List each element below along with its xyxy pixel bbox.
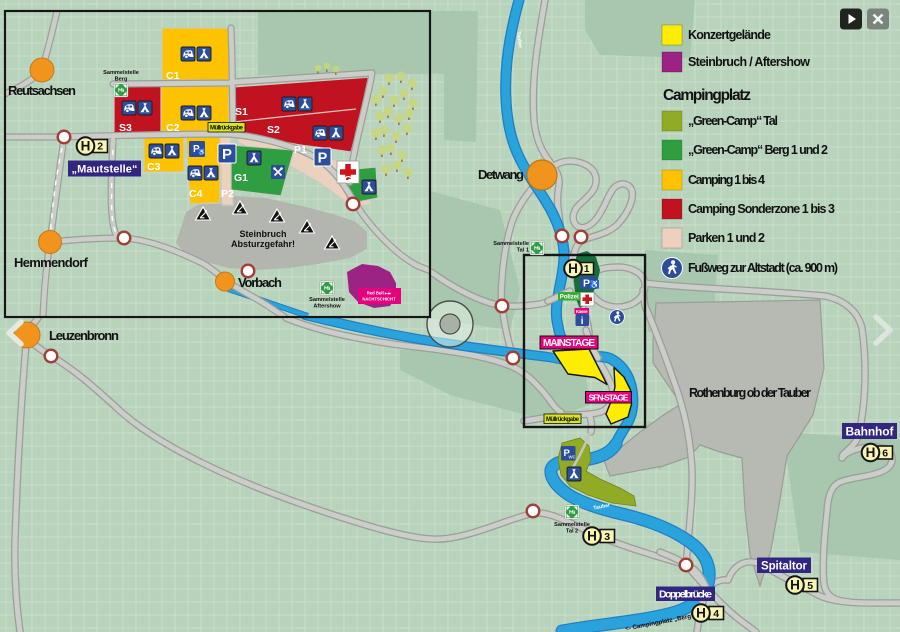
svg-text:Sammelstelle: Sammelstelle <box>554 522 590 528</box>
svg-text:♿: ♿ <box>198 148 206 156</box>
svg-text:Kasse: Kasse <box>576 309 588 314</box>
svg-text:C4: C4 <box>189 188 203 200</box>
svg-text:♿: ♿ <box>590 279 600 289</box>
svg-text:Müllrückgabe: Müllrückgabe <box>210 126 244 132</box>
svg-text:Berg: Berg <box>115 77 128 83</box>
svg-text:G2: G2 <box>344 174 358 186</box>
svg-text:S1: S1 <box>235 106 248 118</box>
svg-text:Campingplatz: Campingplatz <box>663 87 751 104</box>
svg-text:Red Bull ▸◂▸: Red Bull ▸◂▸ <box>367 291 392 296</box>
svg-text:4: 4 <box>713 608 719 620</box>
svg-text:P2: P2 <box>221 188 234 200</box>
svg-text:wc: wc <box>568 455 576 461</box>
svg-text:MAINSTAGE: MAINSTAGE <box>543 338 595 349</box>
svg-text:S2: S2 <box>267 124 280 136</box>
svg-text:Tal 1: Tal 1 <box>517 248 529 254</box>
svg-text:P: P <box>318 151 328 167</box>
svg-text:SFN-STAGE: SFN-STAGE <box>589 392 629 402</box>
svg-text:Sammelstelle: Sammelstelle <box>309 297 345 303</box>
svg-text:Polizei: Polizei <box>560 294 579 301</box>
svg-text:Tal 2: Tal 2 <box>566 529 578 535</box>
svg-text:Sammelstelle: Sammelstelle <box>103 70 139 76</box>
svg-text:„Green-Camp“ Tal: „Green-Camp“ Tal <box>688 114 778 128</box>
svg-text:1: 1 <box>584 264 590 275</box>
svg-text:3: 3 <box>604 531 610 543</box>
svg-text:Steinbruch / Aftershow: Steinbruch / Aftershow <box>688 55 810 69</box>
svg-text:i: i <box>581 316 584 327</box>
svg-text:Absturzgefahr!: Absturzgefahr! <box>231 239 295 249</box>
svg-text:Reutsachsen: Reutsachsen <box>8 83 76 98</box>
svg-text:Camping 1 bis 4: Camping 1 bis 4 <box>688 173 765 187</box>
svg-text:Müllrückgabe: Müllrückgabe <box>546 417 580 423</box>
svg-text:P: P <box>222 146 232 163</box>
svg-text:Aftershow: Aftershow <box>313 304 341 310</box>
svg-text:C3: C3 <box>147 161 161 173</box>
svg-text:Parken 1 und 2: Parken 1 und 2 <box>688 231 765 245</box>
svg-text:Hemmendorf: Hemmendorf <box>14 255 89 270</box>
svg-text:Detwang: Detwang <box>478 167 524 182</box>
svg-text:Steinbruch: Steinbruch <box>239 229 286 239</box>
svg-text:P1: P1 <box>294 144 307 156</box>
svg-text:6: 6 <box>882 447 888 459</box>
svg-text:5: 5 <box>807 580 813 592</box>
svg-text:Doppelbrücke: Doppelbrücke <box>659 589 712 601</box>
svg-text:Rothenburg ob der Tauber: Rothenburg ob der Tauber <box>689 386 811 400</box>
svg-text:C2: C2 <box>166 122 180 134</box>
svg-text:Camping Sonderzone 1 bis 3: Camping Sonderzone 1 bis 3 <box>688 202 835 216</box>
svg-text:Spitaltor: Spitaltor <box>761 561 808 573</box>
svg-text:S3: S3 <box>119 122 132 134</box>
svg-text:2: 2 <box>97 141 103 153</box>
svg-text:NACHTSCHICHT: NACHTSCHICHT <box>362 297 396 302</box>
svg-text:Leuzenbronn: Leuzenbronn <box>49 328 119 343</box>
svg-text:Sammelstelle: Sammelstelle <box>493 241 529 247</box>
svg-text:„Mautstelle“: „Mautstelle“ <box>72 164 138 176</box>
svg-text:Konzertgelände: Konzertgelände <box>688 28 771 42</box>
svg-text:„Green-Camp“ Berg 1 und 2: „Green-Camp“ Berg 1 und 2 <box>688 143 828 157</box>
svg-text:Fußweg zur Altstadt (ca. 900 m: Fußweg zur Altstadt (ca. 900 m) <box>688 261 838 275</box>
svg-text:C1: C1 <box>166 70 180 82</box>
svg-text:G1: G1 <box>234 172 248 184</box>
svg-text:Bahnhof: Bahnhof <box>846 425 895 439</box>
